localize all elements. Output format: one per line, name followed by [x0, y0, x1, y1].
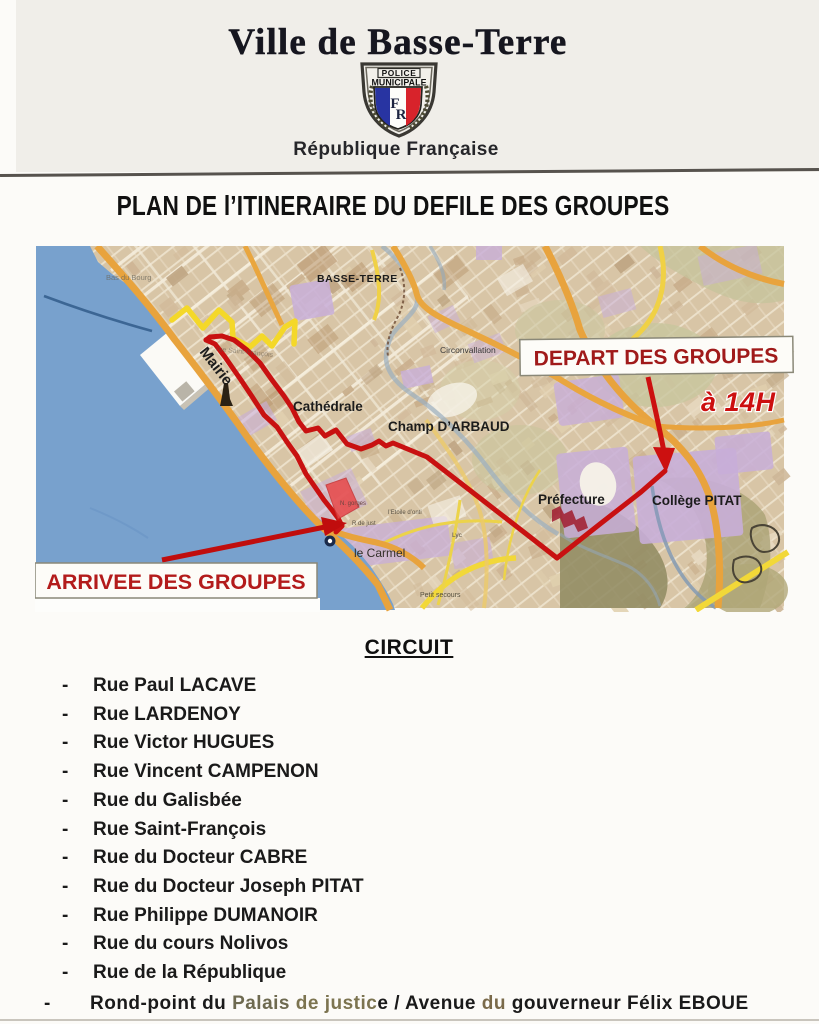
- svg-text:R: R: [396, 107, 407, 123]
- svg-text:Circonvallation: Circonvallation: [440, 345, 496, 355]
- svg-text:l’Etoile d’onti: l’Etoile d’onti: [388, 510, 422, 516]
- svg-text:Bas du Bourg: Bas du Bourg: [106, 273, 151, 282]
- svg-text:à 14H: à 14H: [701, 387, 776, 417]
- svg-text:Préfecture: Préfecture: [538, 492, 605, 507]
- svg-text:le Carmel: le Carmel: [354, 546, 405, 560]
- svg-text:Cathédrale: Cathédrale: [293, 399, 363, 414]
- svg-text:MUNICIPALE: MUNICIPALE: [371, 78, 426, 88]
- svg-text:ARRIVEE DES GROUPES: ARRIVEE DES GROUPES: [46, 570, 305, 594]
- svg-text:N. gorges: N. gorges: [340, 501, 366, 507]
- svg-text:Lyc: Lyc: [452, 532, 463, 539]
- svg-text:BASSE-TERRE: BASSE-TERRE: [317, 273, 398, 285]
- svg-text:DEPART DES GROUPES: DEPART DES GROUPES: [534, 345, 779, 371]
- svg-text:Petit secours: Petit secours: [420, 592, 461, 599]
- svg-text:POLICE: POLICE: [382, 68, 417, 78]
- svg-text:R de just: R de just: [352, 521, 376, 527]
- svg-text:Collège PITAT: Collège PITAT: [652, 493, 742, 508]
- svg-text:Champ D’ARBAUD: Champ D’ARBAUD: [388, 419, 510, 434]
